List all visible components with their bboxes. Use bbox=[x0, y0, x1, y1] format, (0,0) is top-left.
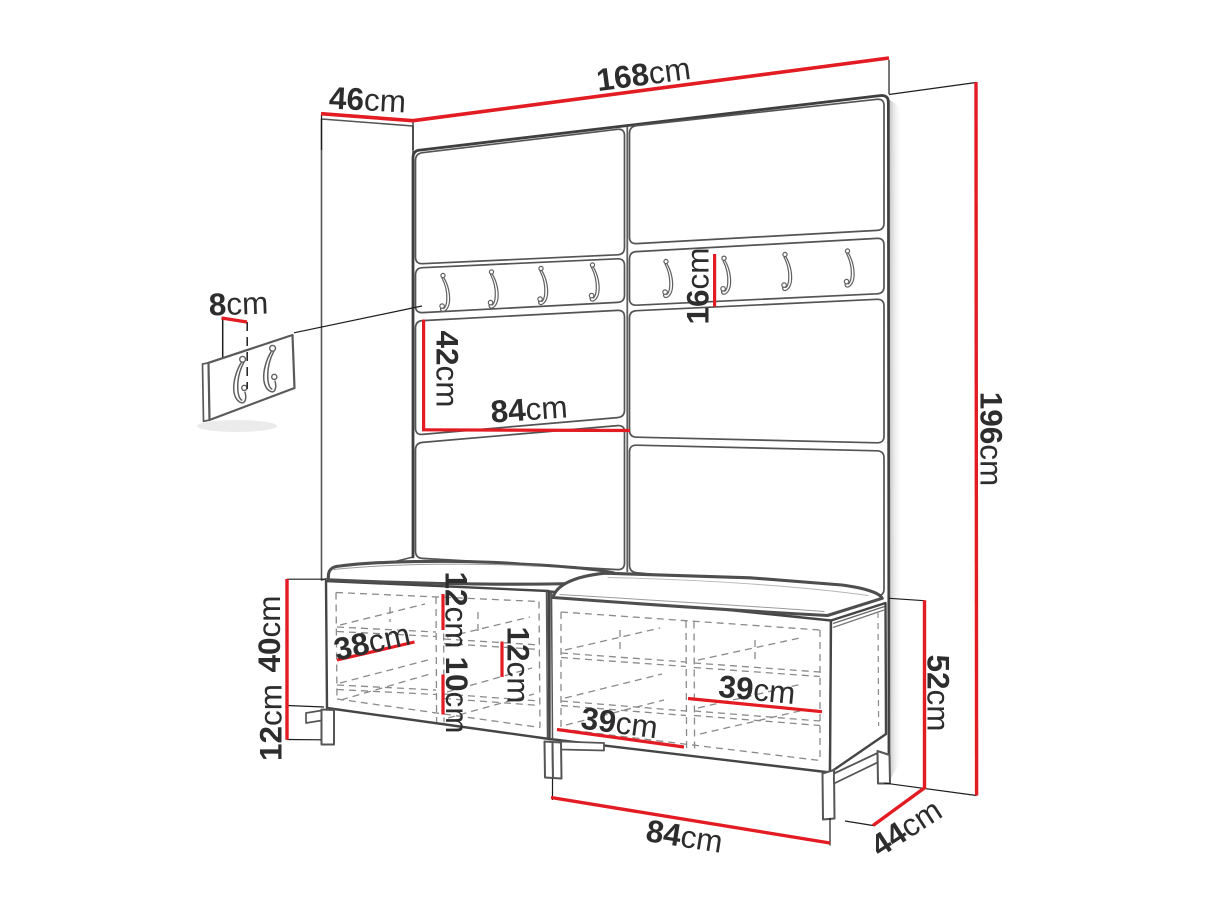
svg-text:196cm: 196cm bbox=[974, 392, 1010, 487]
svg-text:12cm: 12cm bbox=[439, 571, 475, 648]
svg-text:84cm: 84cm bbox=[489, 388, 568, 429]
svg-text:40cm: 40cm bbox=[251, 595, 287, 672]
svg-text:42cm: 42cm bbox=[430, 330, 466, 407]
svg-text:8cm: 8cm bbox=[208, 284, 269, 322]
svg-text:46cm: 46cm bbox=[328, 80, 407, 120]
svg-text:39cm: 39cm bbox=[717, 668, 797, 711]
svg-text:16cm: 16cm bbox=[680, 247, 716, 324]
svg-text:52cm: 52cm bbox=[921, 654, 957, 731]
svg-text:12cm: 12cm bbox=[253, 684, 289, 761]
svg-text:10cm: 10cm bbox=[439, 656, 475, 733]
svg-text:12cm: 12cm bbox=[501, 626, 537, 703]
